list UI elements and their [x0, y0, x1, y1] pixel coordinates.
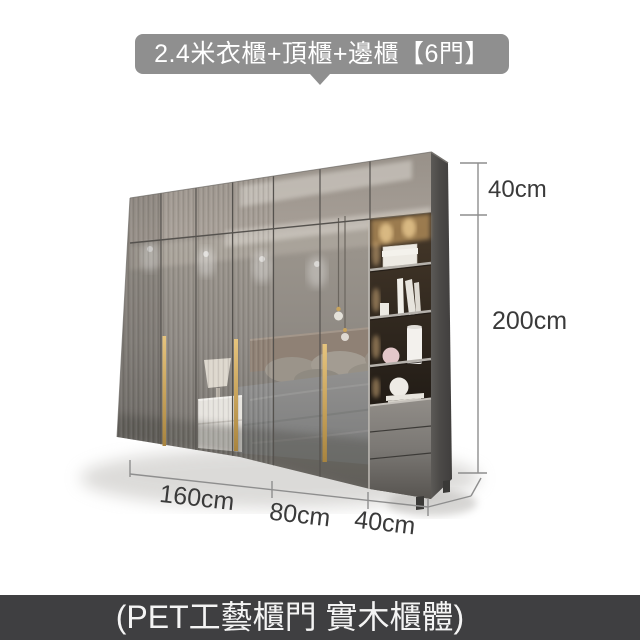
shelf-unit-drawers	[370, 399, 431, 500]
cabinet-side-panel	[431, 152, 452, 499]
product-image: 40cm 200cm 160cm 80cm 40cm	[0, 0, 640, 640]
dimension-label-total-height: 200cm	[492, 307, 567, 335]
dimension-label-width-side: 40cm	[353, 506, 417, 541]
product-title: 2.4米衣櫃+頂櫃+邊櫃【6門】	[154, 40, 490, 68]
door-handle-3	[323, 344, 327, 462]
door-handle-2	[234, 339, 238, 451]
banner-pointer	[310, 74, 330, 85]
title-banner: 2.4米衣櫃+頂櫃+邊櫃【6門】	[135, 34, 509, 74]
shelf-item-storage-box	[382, 244, 418, 267]
side-shelf-unit	[369, 213, 431, 499]
material-caption: (PET工藝櫃門 實木櫃體)	[0, 595, 610, 640]
caption-bar: (PET工藝櫃門 實木櫃體)	[0, 595, 640, 640]
dimension-label-top-height: 40cm	[488, 176, 547, 203]
product-card: 40cm 200cm 160cm 80cm 40cm 2.4米衣櫃+頂櫃+邊櫃【…	[0, 0, 640, 640]
dimension-label-width-secondary: 80cm	[268, 498, 332, 533]
door-handle-1	[163, 336, 167, 446]
